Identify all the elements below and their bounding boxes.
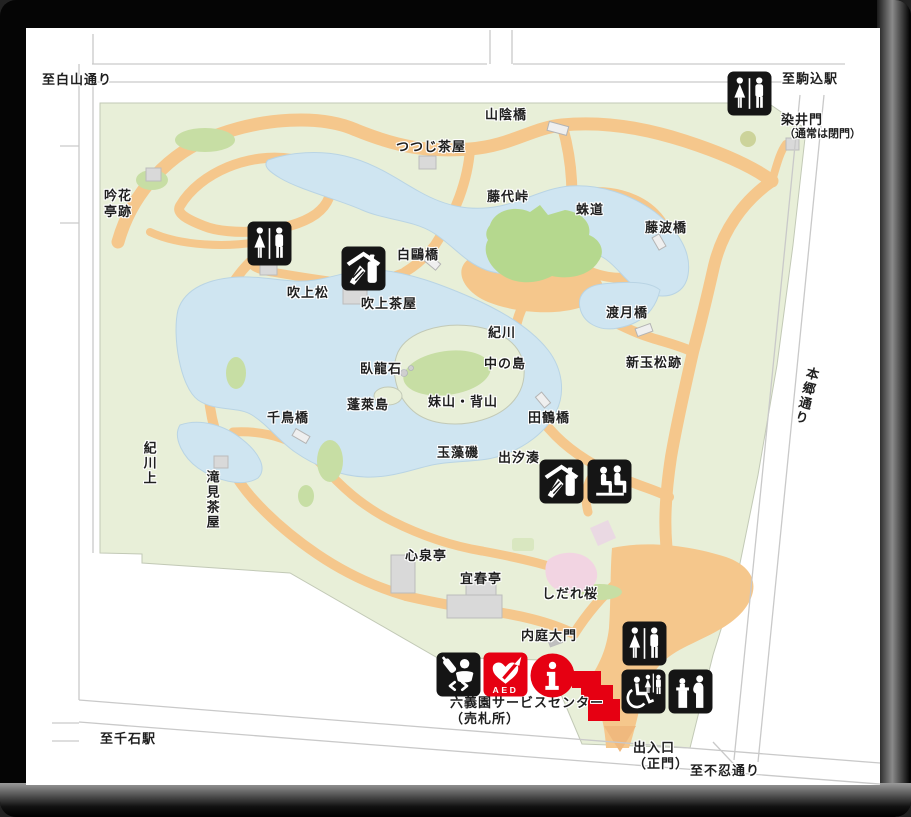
framed-garden-map: 至白山通り至駒込駅染井門（通常は閉門）山陰橋つつじ茶屋藤代峠蛛道藤波橋吟花 亭跡… <box>0 0 911 817</box>
svg-text:AED: AED <box>492 685 518 695</box>
ginkatei-ato-label: 吟花 亭跡 <box>104 188 132 219</box>
kiosk-icon <box>539 459 584 504</box>
garyu-seki-label: 臥龍石 <box>360 361 402 377</box>
fujishiro-toge-label: 藤代峠 <box>487 189 529 205</box>
baby-changing-icon <box>668 669 713 714</box>
toilet-icon <box>727 71 772 116</box>
map-world: 至白山通り至駒込駅染井門（通常は閉門）山陰橋つつじ茶屋藤代峠蛛道藤波橋吟花 亭跡… <box>26 28 880 785</box>
fukiage-matsu-label: 吹上松 <box>287 285 329 301</box>
deshio-minato-label: 出汐湊 <box>498 450 540 466</box>
horai-jima-label: 蓬萊島 <box>347 397 389 413</box>
kumo-michi-label: 蛛道 <box>576 202 604 218</box>
hakuo-bashi-label: 白鷗橋 <box>397 247 439 263</box>
accessible-toilet-icon <box>621 669 666 714</box>
fujinami-bashi-label: 藤波橋 <box>645 220 687 236</box>
gishun-tei-label: 宜春亭 <box>460 571 502 587</box>
aed-icon: AED <box>483 652 528 697</box>
sanin-bashi-label: 山陰橋 <box>485 107 527 123</box>
tazuru-bashi-label: 田鶴橋 <box>528 410 570 426</box>
nakano-shima-label: 中の島 <box>484 356 526 372</box>
fukiage-chaya-label: 吹上茶屋 <box>361 296 417 312</box>
takimi-chaya-label: 滝見茶屋 <box>204 470 220 530</box>
to-komagome-station-label: 至駒込駅 <box>782 71 838 87</box>
tamamo-iso-label: 玉藻磯 <box>437 445 479 461</box>
somei-gate-label: 染井門 <box>781 112 823 128</box>
service-center-label: 六義園サービスセンター （売札所） <box>450 695 604 726</box>
frame-right-edge <box>877 0 911 817</box>
tsutsuji-chaya-label: つつじ茶屋 <box>396 139 466 155</box>
kisen-label: 紀川 <box>488 325 516 341</box>
frame-bottom-edge <box>0 783 911 817</box>
to-hakusan-dori-label: 至白山通り <box>42 72 112 88</box>
chidori-bashi-label: 千鳥橋 <box>267 410 309 426</box>
imoyama-seyama-label: 妹山・背山 <box>428 394 498 410</box>
entrance-main-gate-label: 出入口 （正門） <box>633 740 689 771</box>
aratama-matsu-ato-label: 新玉松跡 <box>626 355 682 371</box>
naitei-daimon-label: 内庭大門 <box>521 628 577 644</box>
to-sengoku-station-label: 至千石駅 <box>100 731 156 747</box>
kisen-kami-label: 紀川上 <box>141 441 157 486</box>
information-icon <box>530 653 575 698</box>
shinsen-tei-label: 心泉亭 <box>405 548 447 564</box>
to-shinobazu-dori-label: 至不忍通り <box>690 763 760 779</box>
nursing-icon <box>436 652 481 697</box>
park-map: 至白山通り至駒込駅染井門（通常は閉門）山陰橋つつじ茶屋藤代峠蛛道藤波橋吟花 亭跡… <box>26 28 880 785</box>
shidare-zakura-label: しだれ桜 <box>542 586 598 602</box>
somei-gate-note-label: （通常は閉門） <box>784 128 861 141</box>
toilet-icon <box>247 221 292 266</box>
bench-icon <box>587 459 632 504</box>
kiosk-icon <box>341 246 386 291</box>
toilet-icon <box>622 621 667 666</box>
togetsu-kyo-label: 渡月橋 <box>606 305 648 321</box>
